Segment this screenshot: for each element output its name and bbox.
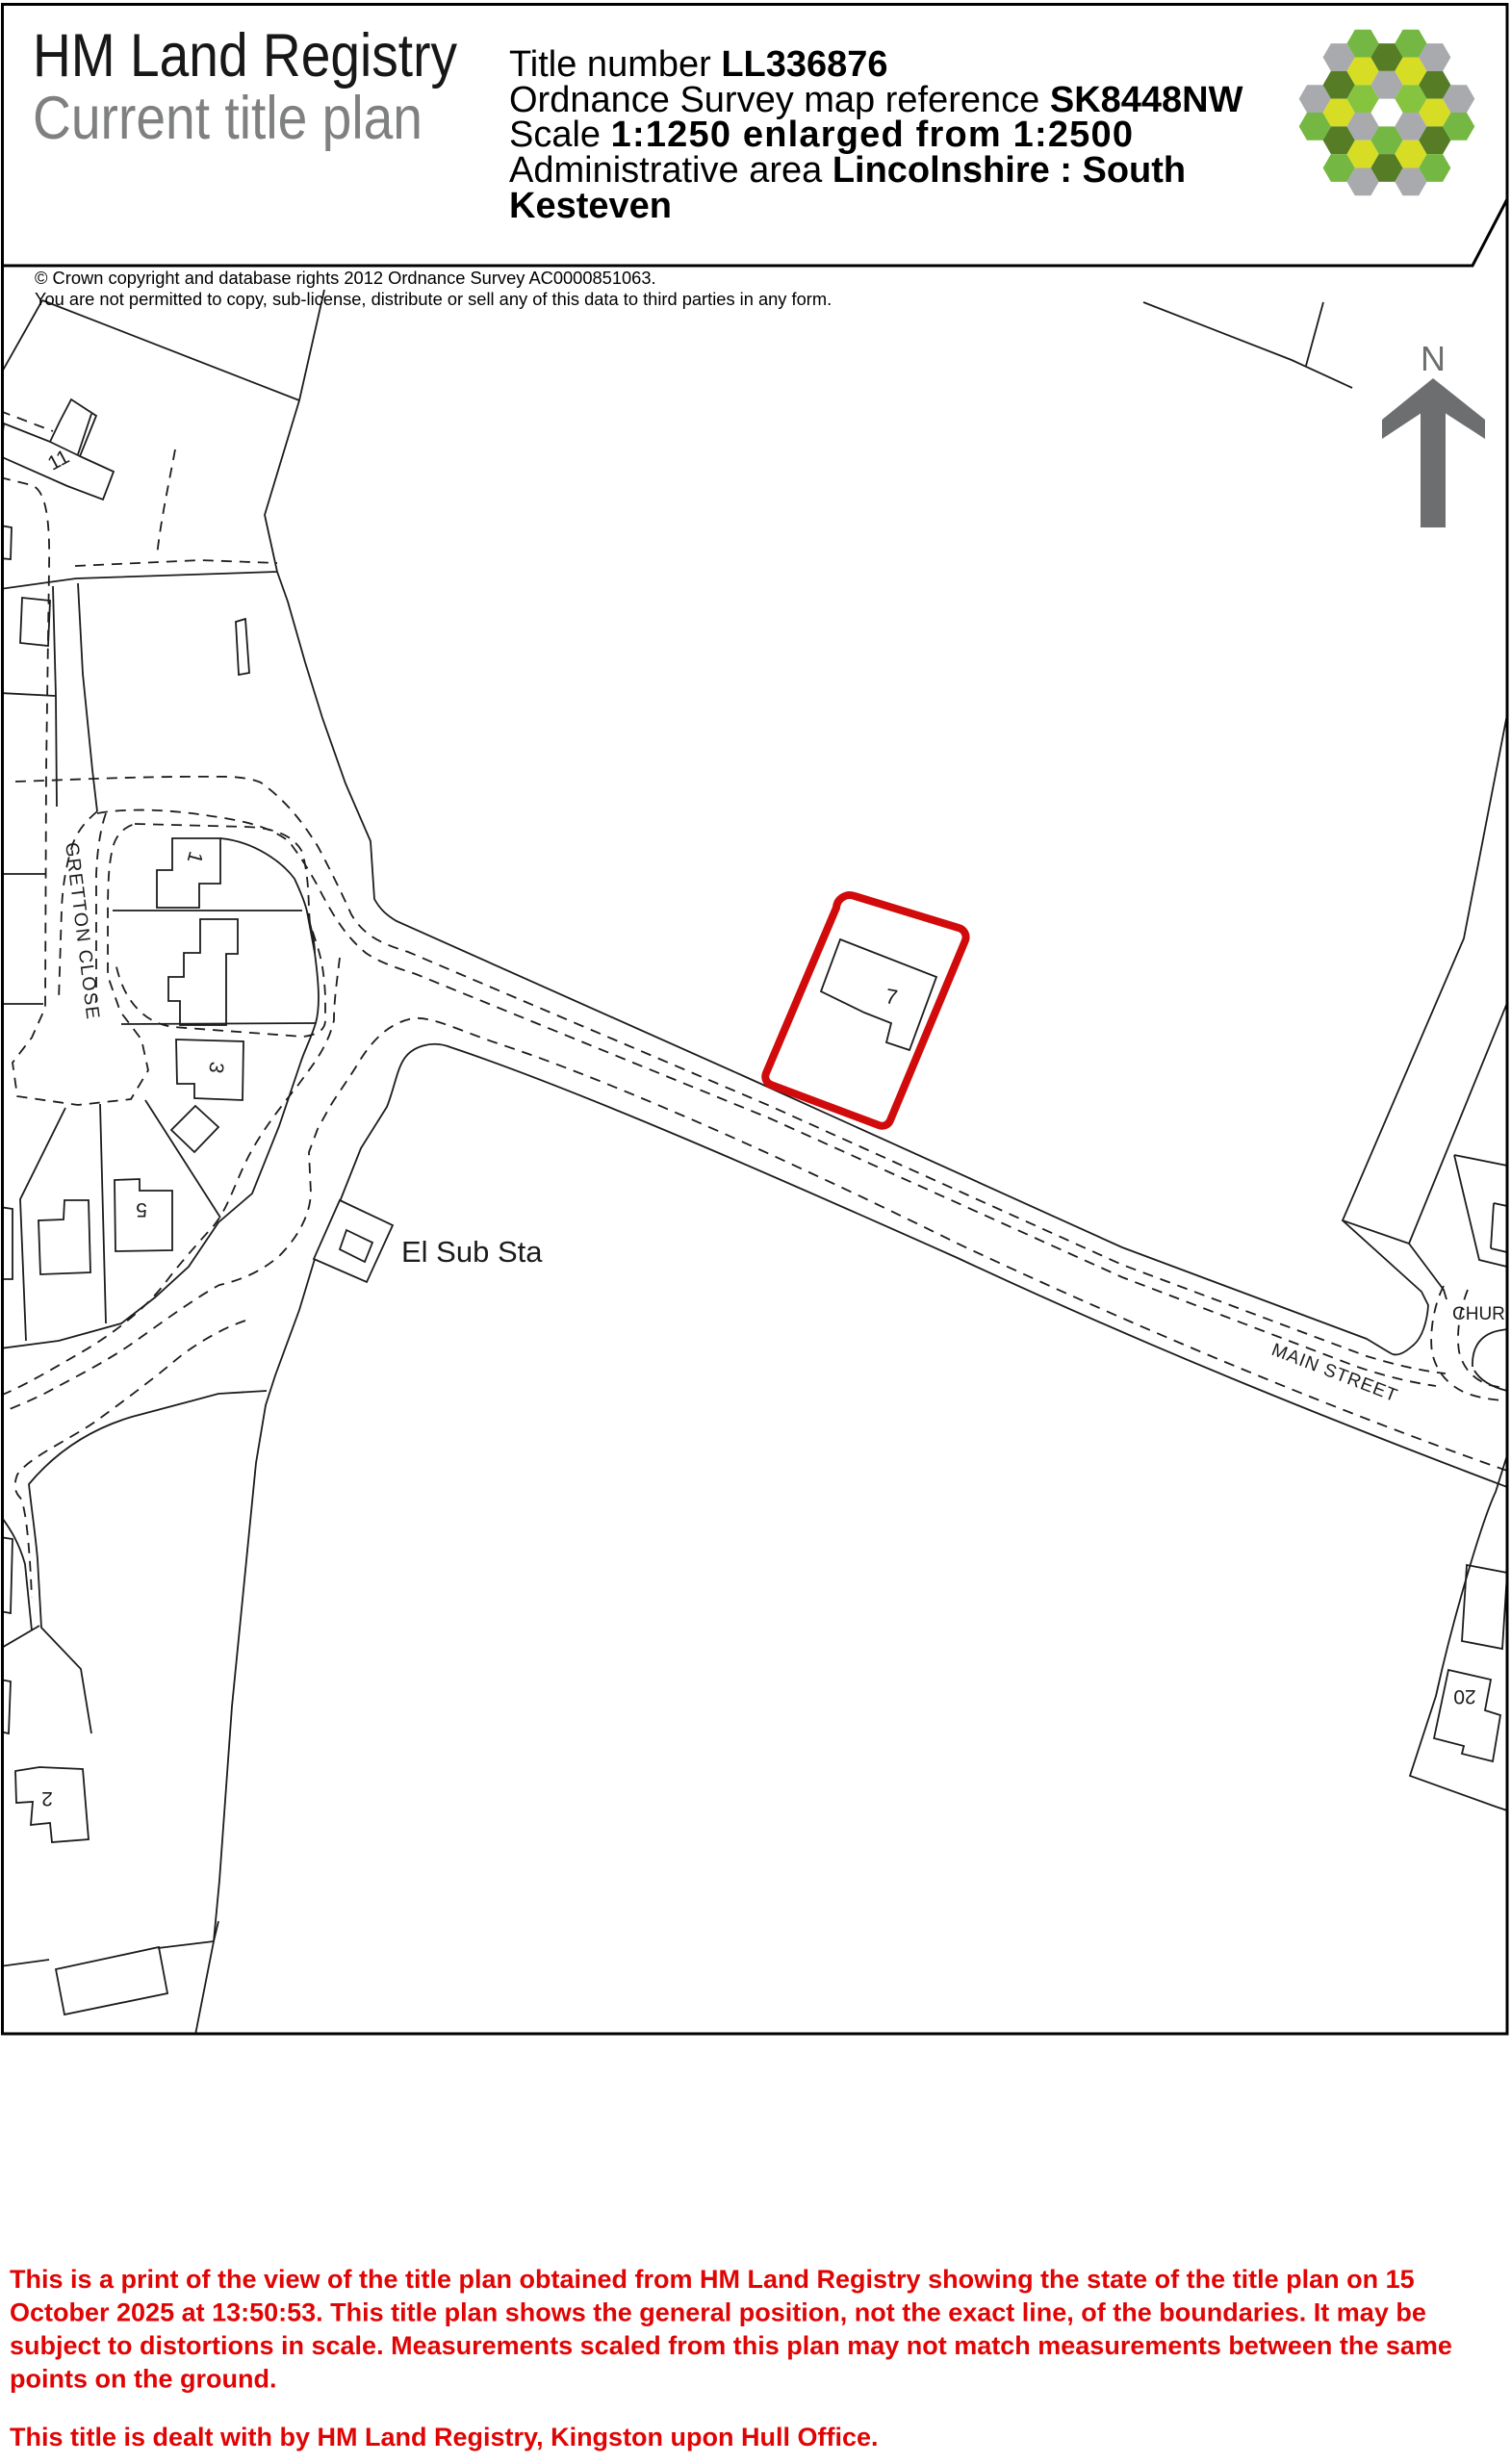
svg-text:This is a print of the view of: This is a print of the view of the title… <box>10 2265 1415 2294</box>
svg-text:1: 1 <box>183 849 207 865</box>
svg-text:3: 3 <box>204 1060 228 1075</box>
svg-text:El Sub Sta: El Sub Sta <box>401 1235 543 1269</box>
svg-text:20: 20 <box>1453 1685 1475 1707</box>
svg-text:N: N <box>1421 339 1446 378</box>
svg-text:Scale 1:1250 enlarged from 1:2: Scale 1:1250 enlarged from 1:2500 <box>509 115 1134 155</box>
svg-text:Administrative area Lincolnshi: Administrative area Lincolnshire : South <box>509 150 1186 191</box>
svg-text:October 2025 at 13:50:53. This: October 2025 at 13:50:53. This title pla… <box>10 2298 1426 2327</box>
svg-text:5: 5 <box>136 1198 147 1220</box>
svg-text:You are not permitted to copy,: You are not permitted to copy, sub-licen… <box>35 289 832 309</box>
svg-text:Kesteven: Kesteven <box>509 186 672 226</box>
svg-text:2: 2 <box>41 1787 53 1809</box>
svg-text:Current title plan: Current title plan <box>33 85 423 152</box>
svg-text:points on the ground.: points on the ground. <box>10 2365 276 2394</box>
svg-text:7: 7 <box>884 984 899 1010</box>
svg-text:© Crown copyright and database: © Crown copyright and database rights 20… <box>35 268 656 288</box>
svg-text:This title is dealt with by HM: This title is dealt with by HM Land Regi… <box>10 2423 879 2451</box>
svg-text:subject to distortions in scal: subject to distortions in scale. Measure… <box>10 2331 1452 2360</box>
svg-text:Title number LL336876: Title number LL336876 <box>509 44 888 85</box>
svg-text:CHURCH: CHURCH <box>1452 1304 1511 1324</box>
svg-text:HM Land Registry: HM Land Registry <box>33 22 457 90</box>
